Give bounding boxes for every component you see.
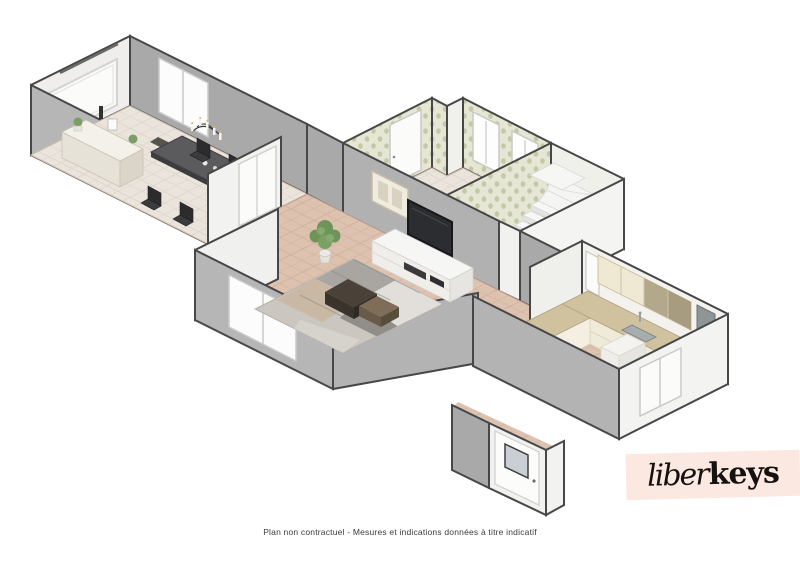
decor-plant: [74, 118, 83, 127]
door-handle: [532, 479, 535, 482]
decor-frame: [108, 119, 117, 130]
bathroom-notch-wall: [432, 98, 447, 176]
logo-bold-part: keys: [708, 455, 779, 492]
kitchen-small-window: [586, 251, 599, 296]
entry-right-wall: [546, 441, 564, 515]
bathroom-notch-side: [447, 98, 463, 176]
floor-plan-page: liberkeys Plan non contractuel - Mesures…: [0, 0, 800, 566]
plan-disclaimer: Plan non contractuel - Mesures et indica…: [0, 527, 800, 537]
logo-text: liberkeys: [647, 458, 779, 491]
entry: [452, 402, 564, 515]
decor-plant: [129, 135, 138, 144]
decor-bottle: [99, 106, 103, 119]
passage-jamb: [499, 221, 520, 301]
liberkeys-logo: liberkeys: [625, 450, 800, 501]
logo-script-part: liber: [647, 457, 708, 494]
